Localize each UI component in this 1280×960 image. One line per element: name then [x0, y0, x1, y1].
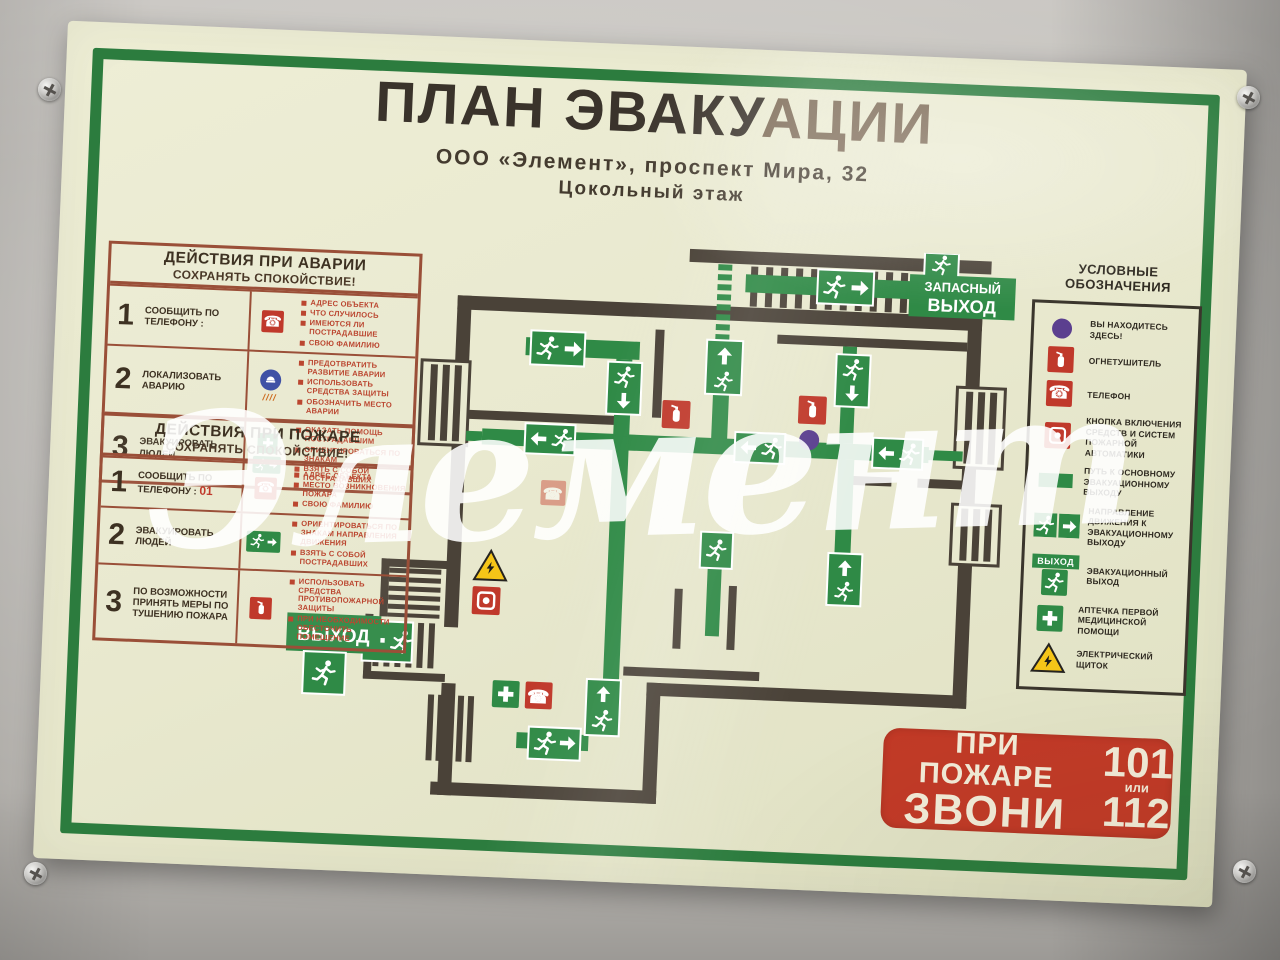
evacuation-path-icon	[1038, 472, 1073, 487]
title-glare-part: АЦИИ	[760, 86, 935, 157]
fire-extinguisher-icon	[1047, 346, 1074, 373]
photo-background: ПЛАН ЭВАКУАЦИИ ООО «Элемент», проспект М…	[0, 0, 1280, 960]
staircase-annex	[425, 694, 474, 762]
phone-icon-faint: ☎	[540, 480, 566, 506]
list-item: ОГНЕТУШИТЕЛЬ	[1040, 346, 1189, 378]
emergency-number: 01	[199, 484, 213, 499]
emergency-exit-label-line1: ЗАПАСНЫЙ	[924, 279, 1001, 297]
legend: УСЛОВНЫЕ ОБОЗНАЧЕНИЯ ВЫ НАХОДИТЕСЬ ЗДЕСЬ…	[1016, 259, 1204, 696]
list-item: ПУТЬ К ОСНОВНОМУ ЭВАКУАЦИОННОМУ ВЫХОДУ	[1035, 464, 1184, 502]
screw-top-left	[38, 78, 61, 101]
screw-bottom-right	[1233, 860, 1256, 883]
legend-box: ВЫ НАХОДИТЕСЬ ЗДЕСЬ! ОГНЕТУШИТЕЛЬ ☎ ТЕЛЕ…	[1016, 299, 1202, 696]
emergency-number-112: 112	[1100, 794, 1172, 833]
table-row: 2 ЛОКАЛИЗОВАТЬ АВАРИЮ //// ПРЕДОТВРАТИТЬ…	[105, 344, 416, 425]
emergency-exit-label-line2: ВЫХОД	[927, 295, 997, 318]
fire-alarm-button-icon	[1044, 422, 1071, 449]
fire-actions-table: ДЕЙСТВИЯ ПРИ ПОЖАРЕ СОХРАНЯТЬ СПОКОЙСТВИ…	[92, 412, 415, 653]
protective-helmet-icon	[259, 369, 281, 391]
electrical-warning-icon	[1028, 641, 1069, 674]
list-item: ЭЛЕКТРИЧЕСКИЙ ЩИТОК	[1028, 641, 1177, 678]
list-item: КНОПКА ВКЛЮЧЕНИЯ СРЕДСТВ И СИСТЕМ ПОЖАРН…	[1037, 414, 1187, 462]
list-item: ВЫХОД ЭВАКУАЦИОННЫЙ ВЫХОД	[1031, 553, 1181, 600]
exit-sign-icon	[246, 531, 281, 553]
fire-call-box: ПРИ ПОЖАРЕ ЗВОНИ 101 или 112	[880, 727, 1174, 839]
list-item: ВЫ НАХОДИТЕСЬ ЗДЕСЬ!	[1042, 317, 1191, 344]
phone-icon: ☎	[1046, 380, 1073, 407]
phone-icon: ☎	[261, 310, 284, 333]
fire-extinguisher-icon	[249, 596, 272, 619]
legend-title: УСЛОВНЫЕ ОБОЗНАЧЕНИЯ	[1033, 259, 1204, 296]
exit-sign-icon: ВЫХОД	[1031, 553, 1080, 596]
list-item: НАПРАВЛЕНИЕ ДВИЖЕНИЯ К ЭВАКУАЦИОННОМУ ВЫ…	[1033, 503, 1183, 551]
first-aid-icon	[1036, 605, 1063, 632]
svg-text:☎: ☎	[542, 486, 563, 504]
list-item: ☎ ТЕЛЕФОН	[1039, 380, 1188, 412]
screw-top-right	[1237, 86, 1260, 109]
emergency-number-101: 101	[1102, 744, 1174, 783]
hazard-slashes-icon: ////	[262, 393, 276, 403]
evacuation-plan-poster: ПЛАН ЭВАКУАЦИИ ООО «Элемент», проспект М…	[33, 21, 1247, 908]
direction-arrow-icon	[1033, 512, 1080, 538]
call-box-line2: ЗВОНИ	[880, 786, 1090, 838]
you-are-here-dot-icon	[1052, 318, 1073, 339]
screw-bottom-left	[24, 862, 47, 885]
table-row: 3 ПО ВОЗМОЖНОСТИ ПРИНЯТЬ МЕРЫ ПО ТУШЕНИЮ…	[95, 562, 406, 650]
svg-text:☎: ☎	[527, 686, 550, 707]
list-item: АПТЕЧКА ПЕРВОЙ МЕДИЦИНСКОЙ ПОМОЩИ	[1029, 602, 1178, 640]
phone-icon: ☎	[254, 477, 277, 500]
